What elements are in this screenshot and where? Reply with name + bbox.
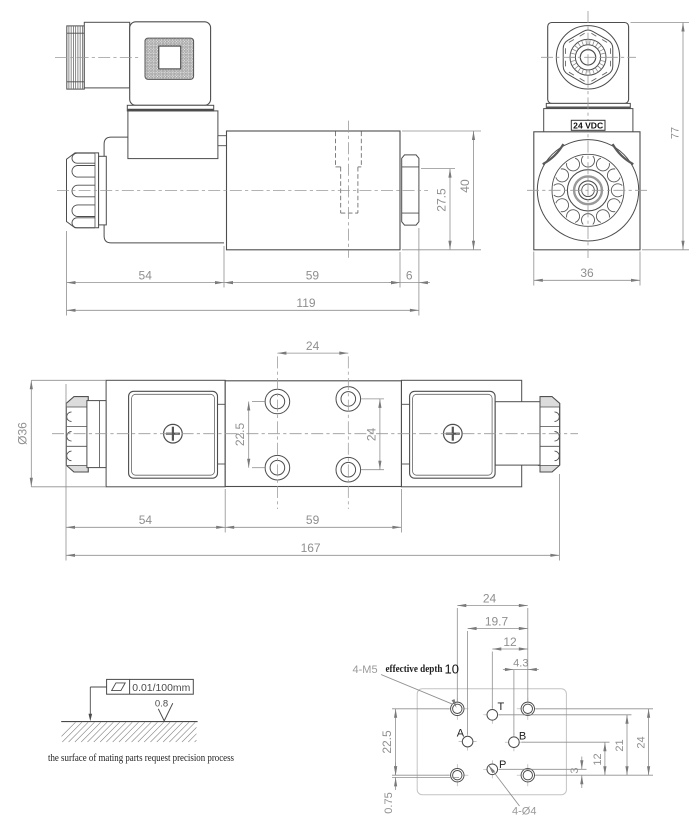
svg-text:6: 6 [406, 268, 413, 282]
svg-text:24: 24 [306, 339, 320, 353]
svg-text:19.7: 19.7 [485, 614, 509, 628]
svg-text:Ø36: Ø36 [16, 422, 30, 445]
svg-text:24: 24 [483, 591, 497, 605]
svg-text:T: T [498, 701, 505, 713]
svg-text:59: 59 [306, 513, 320, 527]
svg-text:24 VDC: 24 VDC [573, 120, 603, 130]
svg-text:77: 77 [669, 127, 681, 139]
svg-text:40: 40 [458, 179, 472, 193]
svg-text:effective depth: effective depth [386, 664, 443, 675]
svg-text:0.8: 0.8 [155, 699, 168, 710]
svg-text:54: 54 [139, 513, 153, 527]
svg-text:10: 10 [445, 661, 459, 676]
svg-text:22.5: 22.5 [233, 422, 247, 446]
svg-text:B: B [519, 730, 526, 742]
svg-text:167: 167 [301, 541, 321, 555]
svg-text:A: A [457, 728, 465, 740]
svg-text:the surface of mating parts re: the surface of mating parts request prec… [48, 753, 234, 764]
svg-text:0.75: 0.75 [383, 792, 395, 813]
svg-text:21: 21 [614, 739, 626, 751]
svg-text:4-M5: 4-M5 [353, 664, 378, 676]
svg-text:22.5: 22.5 [380, 730, 394, 754]
svg-text:24: 24 [636, 736, 648, 748]
svg-text:24: 24 [364, 428, 378, 442]
svg-text:12: 12 [503, 635, 517, 649]
svg-text:4.3: 4.3 [513, 657, 528, 669]
svg-text:3: 3 [569, 767, 581, 773]
svg-text:59: 59 [306, 268, 320, 282]
svg-text:4-Ø4: 4-Ø4 [512, 806, 536, 818]
svg-text:27.5: 27.5 [434, 188, 448, 212]
svg-text:0.01/100mm: 0.01/100mm [132, 683, 190, 694]
svg-text:54: 54 [139, 268, 153, 282]
svg-text:36: 36 [580, 266, 594, 280]
svg-text:119: 119 [296, 296, 315, 310]
svg-text:12: 12 [592, 753, 604, 765]
